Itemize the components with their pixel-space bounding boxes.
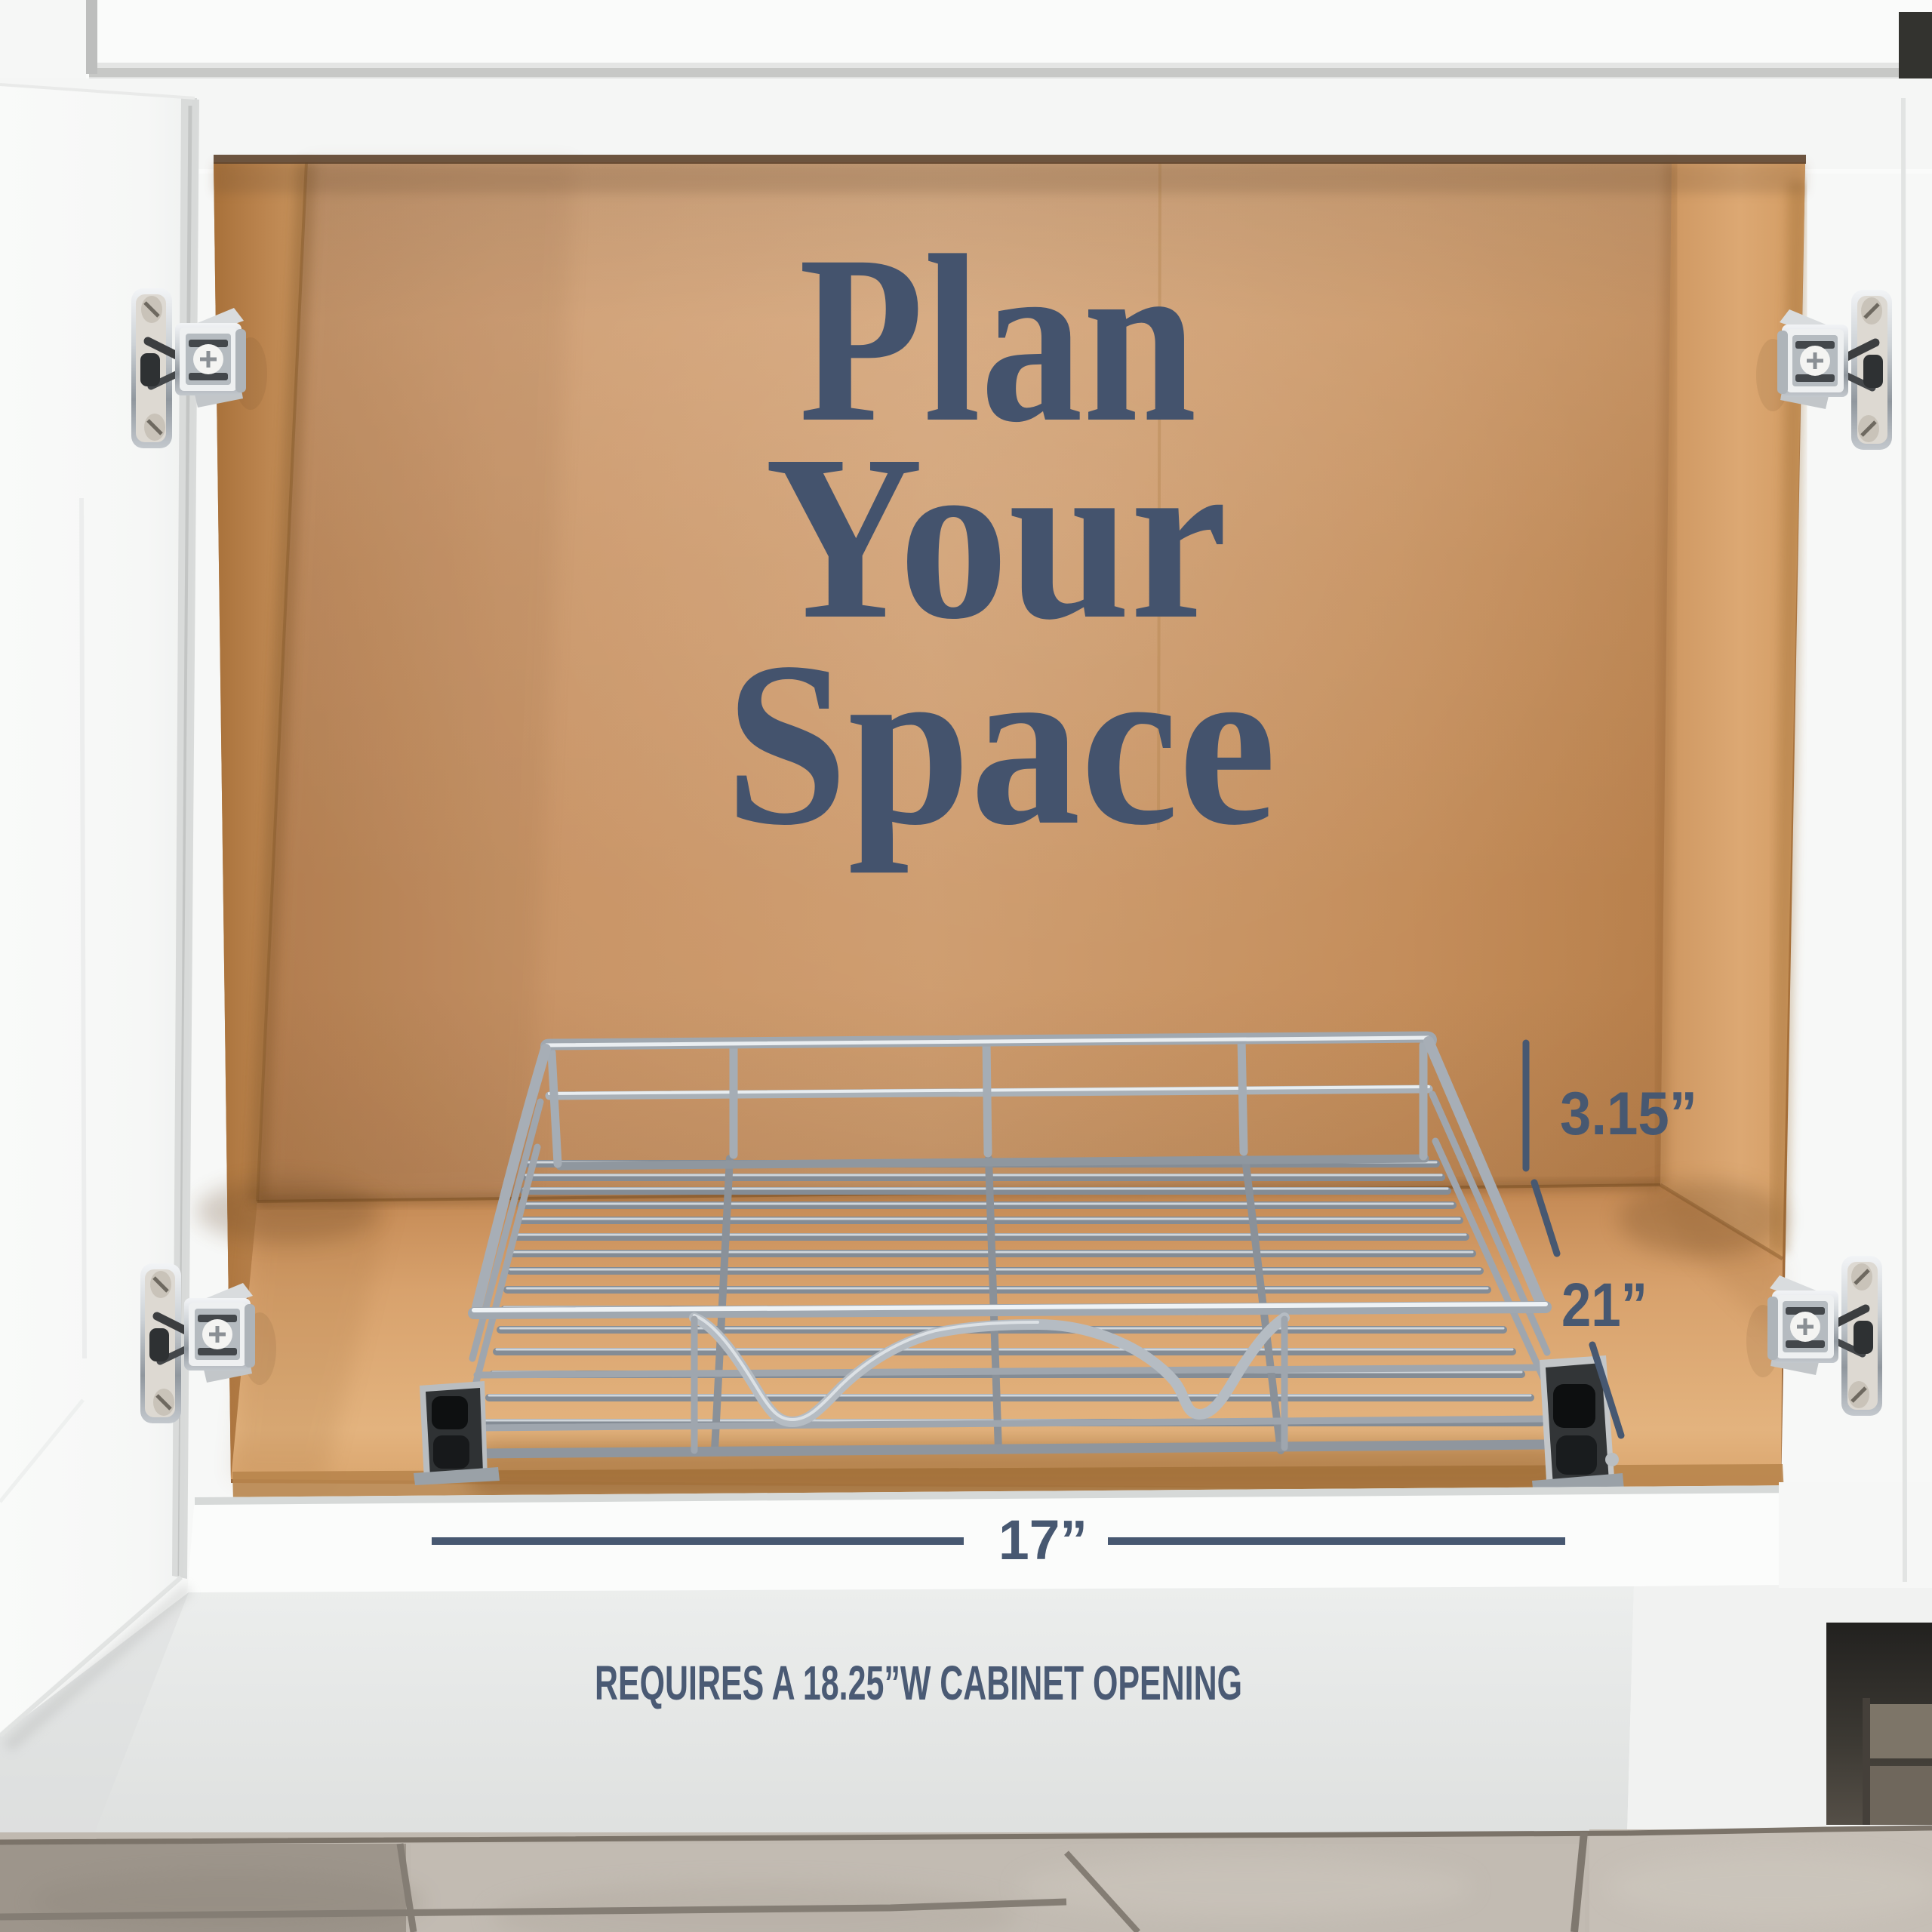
svg-text:3.15”: 3.15”: [1560, 1080, 1697, 1148]
svg-text:21”: 21”: [1561, 1271, 1647, 1340]
svg-text:Space: Space: [725, 614, 1276, 874]
svg-text:17”: 17”: [998, 1509, 1088, 1571]
svg-text:REQUIRES A 18.25”W CABINET OPE: REQUIRES A 18.25”W CABINET OPENING: [595, 1656, 1242, 1710]
